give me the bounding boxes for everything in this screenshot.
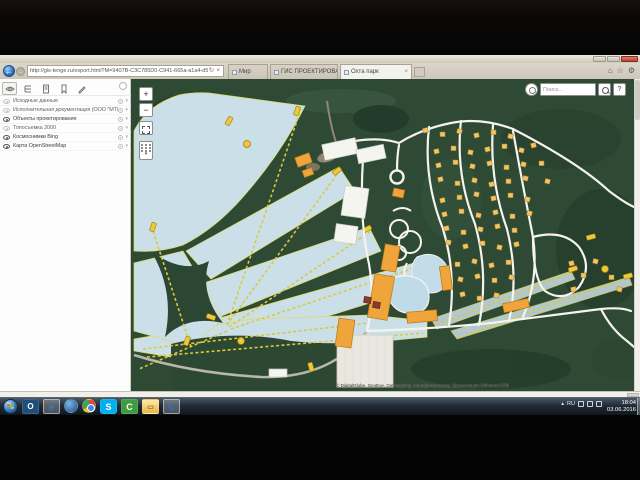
scrollbar-thumb[interactable] — [635, 80, 640, 120]
minimize-button[interactable] — [593, 56, 606, 62]
language-indicator[interactable]: RU — [567, 401, 575, 407]
layer-row[interactable]: Космоснимки Bing ▾ — [0, 133, 131, 142]
tab-label: ГИС ПРОЕКТИРОВАНИЕ — [281, 69, 338, 75]
chevron-down-icon[interactable]: ▾ — [125, 107, 128, 113]
pencil-icon — [77, 84, 87, 94]
letterbox-bottom — [0, 415, 640, 480]
search-cluster: ? — [525, 83, 626, 96]
network-icon[interactable] — [587, 401, 593, 407]
map-canvas[interactable] — [131, 79, 634, 391]
windows-taskbar: O e S C ▭ C ▴ RU 18:04 03.06.2016 — [0, 397, 640, 415]
vertical-scrollbar[interactable] — [634, 79, 640, 391]
c-app-icon[interactable]: C — [163, 399, 180, 414]
search-button[interactable] — [598, 83, 611, 96]
zoom-in-button[interactable]: + — [139, 87, 153, 101]
map-attribution: © DigitalGlobe, GeoEye, Getmapping, Аэро… — [336, 383, 509, 388]
internet-explorer-icon[interactable]: e — [43, 399, 60, 414]
new-tab-button[interactable] — [414, 67, 425, 77]
layer-row[interactable]: Топосъемка 2000 ▾ — [0, 124, 131, 133]
video-frame: ← → http://gis-tenge.ru/export.html?M=94… — [0, 0, 640, 480]
browser-tab-2[interactable]: ГИС ПРОЕКТИРОВАНИЕ — [270, 64, 338, 79]
extent-icon — [142, 126, 150, 134]
layer-list: Исходные данные ▾ Исполнительная докумен… — [0, 97, 131, 151]
edit-tab[interactable] — [74, 82, 89, 95]
bookmark-icon — [59, 84, 69, 94]
document-icon — [41, 84, 51, 94]
chevron-down-icon[interactable]: ▾ — [125, 125, 128, 131]
browser-toolbar-icons: ⌂ ☆ ⚙ — [608, 66, 635, 75]
clock-date: 03.06.2016 — [607, 407, 636, 414]
layer-visibility-eye-icon[interactable] — [3, 144, 10, 149]
layer-row[interactable]: Исходные данные ▾ — [0, 97, 131, 106]
chevron-down-icon[interactable]: ▾ — [125, 116, 128, 122]
chevron-down-icon[interactable]: ▾ — [125, 98, 128, 104]
address-bar[interactable]: http://gis-tenge.ru/export.html?M=9407B-… — [27, 65, 224, 77]
panel-collapse-button[interactable] — [119, 82, 127, 90]
layer-label: Топосъемка 2000 — [13, 125, 118, 131]
layer-label: Исполнительная документация (ООО "МТМ") — [13, 107, 118, 113]
outlook-icon[interactable]: O — [22, 399, 39, 414]
window-controls — [593, 56, 638, 62]
taskbar-apps: O e S C ▭ C — [22, 399, 180, 414]
stop-icon[interactable]: × — [215, 66, 221, 76]
search-input[interactable] — [540, 83, 596, 96]
layer-visibility-eye-icon[interactable] — [3, 126, 10, 131]
layer-visibility-eye-icon[interactable] — [3, 135, 10, 140]
layer-label: Исходные данные — [13, 98, 118, 104]
eye-icon — [5, 84, 15, 94]
favorites-star-icon[interactable]: ☆ — [617, 66, 624, 75]
layer-gear-icon[interactable] — [118, 126, 123, 131]
home-icon[interactable]: ⌂ — [608, 66, 613, 75]
browser-window: ← → http://gis-tenge.ru/export.html?M=94… — [0, 55, 640, 397]
file-explorer-icon[interactable]: ▭ — [142, 399, 159, 414]
panel-toolbar — [0, 81, 131, 96]
layer-gear-icon[interactable] — [118, 99, 123, 104]
tab-favicon — [344, 70, 349, 75]
layers-panel: Исходные данные ▾ Исполнительная докумен… — [0, 79, 131, 391]
chrome-icon[interactable] — [82, 399, 96, 413]
layer-visibility-eye-icon[interactable] — [3, 99, 10, 104]
layer-visibility-eye-icon[interactable] — [3, 108, 10, 113]
layer-label: Космоснимки Bing — [13, 134, 118, 140]
layer-row[interactable]: Исполнительная документация (ООО "МТМ") … — [0, 106, 131, 115]
green-app-icon[interactable]: C — [121, 399, 138, 414]
tab-favicon — [274, 70, 279, 75]
action-center-icon[interactable] — [578, 401, 584, 407]
visibility-tab[interactable] — [2, 82, 17, 95]
close-button[interactable] — [621, 56, 638, 62]
skype-icon[interactable]: S — [100, 399, 117, 414]
bookmarks-tab[interactable] — [56, 82, 71, 95]
tab-close-icon[interactable]: × — [404, 69, 408, 75]
browser-tab-3-active[interactable]: Охта парк × — [340, 64, 412, 79]
hidden-icons-caret[interactable]: ▴ — [561, 401, 564, 407]
help-button[interactable]: ? — [613, 83, 626, 96]
layer-label: Карта OpenStreetMap — [13, 143, 118, 149]
system-tray: ▴ RU — [561, 401, 602, 407]
measure-tool-button[interactable] — [525, 83, 538, 96]
documents-tab[interactable] — [38, 82, 53, 95]
map-viewport[interactable]: + − ▾ ? © DigitalGlobe, GeoEye, Getmappi… — [131, 79, 634, 391]
windows-flag-icon — [7, 403, 14, 410]
tab-favicon — [232, 70, 237, 75]
tab-label: Охта парк — [351, 69, 400, 75]
layer-label: Объекты проектирования — [13, 116, 118, 122]
chevron-down-icon: ▾ — [140, 152, 152, 157]
layer-gear-icon[interactable] — [118, 108, 123, 113]
volume-icon[interactable] — [596, 401, 602, 407]
page-content: Исходные данные ▾ Исполнительная докумен… — [0, 79, 640, 391]
chevron-down-icon[interactable]: ▾ — [125, 143, 128, 149]
tab-label: Мир — [239, 69, 251, 75]
layer-gear-icon[interactable] — [118, 144, 123, 149]
url-text: http://gis-tenge.ru/export.html?M=9407B-… — [30, 66, 208, 76]
maximize-button[interactable] — [607, 56, 620, 62]
layer-row[interactable]: Объекты проектирования ▾ — [0, 115, 131, 124]
legend-tab[interactable] — [20, 82, 35, 95]
browser-tab-1[interactable]: Мир — [228, 64, 268, 79]
layer-row[interactable]: Карта OpenStreetMap ▾ — [0, 142, 131, 151]
basemap-picker-button[interactable]: ▾ — [139, 141, 153, 160]
start-button[interactable] — [3, 399, 18, 414]
gear-icon[interactable]: ⚙ — [628, 66, 635, 75]
list-icon — [23, 84, 33, 94]
browser-globe-icon[interactable] — [64, 399, 78, 413]
taskbar-clock[interactable]: 18:04 03.06.2016 — [607, 400, 636, 414]
clock-time: 18:04 — [607, 400, 636, 407]
chevron-down-icon[interactable]: ▾ — [125, 134, 128, 140]
layer-gear-icon[interactable] — [118, 117, 123, 122]
zoom-out-button[interactable]: − — [139, 103, 153, 117]
browser-navbar: ← → http://gis-tenge.ru/export.html?M=94… — [0, 63, 640, 79]
letterbox-top — [0, 0, 640, 55]
refresh-icon[interactable]: ↻ — [208, 66, 215, 76]
forward-button[interactable]: → — [16, 67, 25, 76]
back-button[interactable]: ← — [3, 65, 15, 77]
layer-gear-icon[interactable] — [118, 135, 123, 140]
layer-visibility-eye-icon[interactable] — [3, 117, 10, 122]
window-titlebar — [0, 55, 640, 63]
